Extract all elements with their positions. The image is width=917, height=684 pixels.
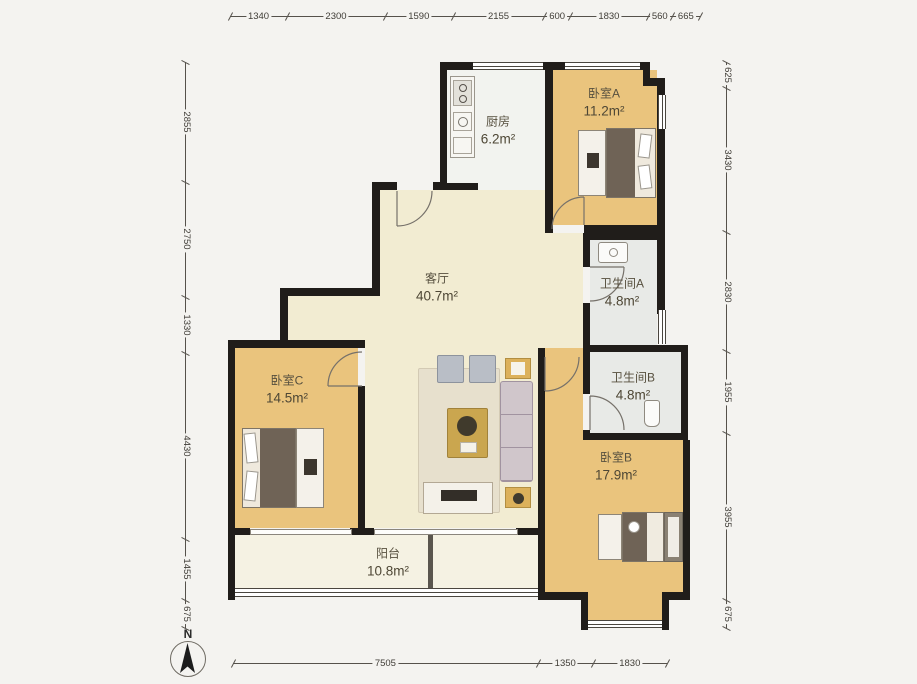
dimension-label: 2830 [722, 279, 732, 304]
dimension-label: 3955 [722, 504, 732, 529]
dimension-label: 1340 [246, 12, 271, 22]
dimension-segment: 2300 [287, 9, 385, 24]
dimension-label: 1830 [617, 659, 642, 669]
room-name: 客厅 [416, 271, 458, 287]
dimension-line-left: 28552750133044301455675 [178, 62, 193, 628]
dimension-segment: 1455 [178, 539, 193, 600]
dimension-segment: 7505 [233, 656, 538, 671]
dimension-label: 1330 [181, 312, 191, 337]
dimension-label: 1590 [406, 12, 431, 22]
dimension-line-top: 13402300159021556001830560665 [230, 9, 700, 24]
dimension-segment: 3430 [719, 88, 734, 232]
room-label-bedroom-c: 卧室C 14.5m² [266, 373, 308, 406]
compass-circle [170, 641, 206, 677]
dimension-segment: 675 [178, 600, 193, 628]
north-label: N [163, 628, 213, 640]
room-name: 卫生间A [600, 276, 644, 292]
dimension-label: 560 [650, 12, 670, 22]
room-area: 14.5m² [266, 389, 308, 407]
dimension-segment: 560 [648, 9, 672, 24]
dimension-label: 2300 [323, 12, 348, 22]
room-area: 4.8m² [600, 292, 644, 310]
dimension-segment: 1330 [178, 297, 193, 353]
room-area: 6.2m² [481, 130, 516, 148]
room-name: 卧室A [583, 86, 624, 102]
dimension-label: 2750 [181, 227, 191, 252]
dimension-segment: 2750 [178, 182, 193, 297]
dimension-segment: 2855 [178, 62, 193, 182]
dimension-segment: 1350 [538, 656, 593, 671]
dimension-segment: 665 [672, 9, 700, 24]
dimension-segment: 1830 [570, 9, 648, 24]
dimension-line-bottom: 750513501830 [233, 656, 667, 671]
dimension-segment: 1340 [230, 9, 287, 24]
dimension-label: 3430 [722, 148, 732, 173]
dimension-label: 625 [722, 65, 732, 85]
room-area: 4.8m² [611, 386, 655, 404]
room-label-kitchen: 厨房 6.2m² [481, 114, 516, 147]
dimension-segment: 2155 [453, 9, 545, 24]
room-area: 11.2m² [583, 102, 624, 120]
dimension-label: 1455 [181, 557, 191, 582]
dimension-label: 4430 [181, 433, 191, 458]
room-label-bathroom-a: 卫生间A 4.8m² [600, 276, 644, 309]
dimension-segment: 1590 [385, 9, 453, 24]
room-area: 17.9m² [595, 466, 637, 484]
dimension-label: 665 [676, 12, 696, 22]
dimension-label: 675 [181, 604, 191, 624]
dimension-segment: 1830 [593, 656, 667, 671]
dimension-segment: 675 [719, 600, 734, 628]
dimension-label: 600 [547, 12, 567, 22]
room-label-bedroom-a: 卧室A 11.2m² [583, 86, 624, 119]
bedroom-a-door-icon [552, 197, 584, 229]
room-name: 厨房 [481, 114, 516, 130]
room-label-bedroom-b: 卧室B 17.9m² [595, 450, 637, 483]
dimension-label: 2855 [181, 109, 191, 134]
dimension-label: 7505 [373, 659, 398, 669]
dimension-label: 675 [722, 604, 732, 624]
dimension-label: 1955 [722, 380, 732, 405]
dimension-segment: 2830 [719, 232, 734, 351]
room-area: 10.8m² [367, 562, 409, 580]
compass: N [163, 628, 213, 684]
room-name: 卧室C [266, 373, 308, 389]
room-name: 阳台 [367, 546, 409, 562]
dimension-segment: 600 [544, 9, 570, 24]
entry-door-icon [397, 191, 432, 226]
room-name: 卧室B [595, 450, 637, 466]
room-label-bathroom-b: 卫生间B 4.8m² [611, 370, 655, 403]
floor-plan-canvas: 厨房 6.2m² 卧室A 11.2m² 客厅 40.7m² 卫生间A 4.8m²… [0, 0, 917, 684]
dimension-segment: 625 [719, 62, 734, 88]
bedroom-c-door-icon [328, 352, 362, 386]
dimension-line-right: 6253430283019553955675 [719, 62, 734, 628]
room-label-balcony: 阳台 10.8m² [367, 546, 409, 579]
door-swing-layer [0, 0, 917, 684]
dimension-segment: 1955 [719, 351, 734, 433]
hallway-door-icon [545, 357, 579, 391]
room-name: 卫生间B [611, 370, 655, 386]
room-area: 40.7m² [416, 287, 458, 305]
dimension-segment: 3955 [719, 433, 734, 599]
dimension-label: 1830 [596, 12, 621, 22]
north-arrow-icon [171, 642, 204, 675]
dimension-segment: 4430 [178, 353, 193, 539]
room-label-living-room: 客厅 40.7m² [416, 271, 458, 304]
dimension-label: 1350 [553, 659, 578, 669]
dimension-label: 2155 [486, 12, 511, 22]
